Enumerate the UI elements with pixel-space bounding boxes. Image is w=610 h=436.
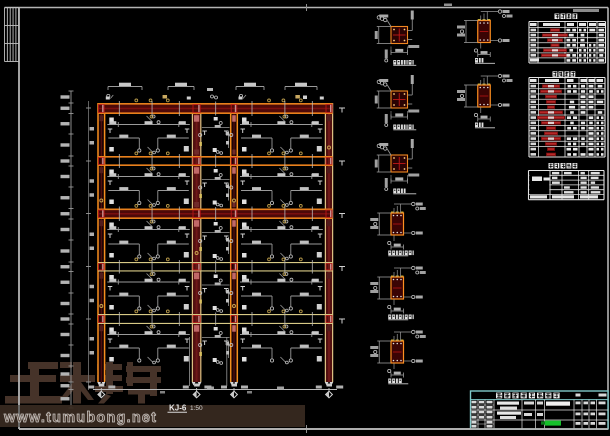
svg-text:1:50: 1:50 (190, 405, 203, 412)
svg-text:KJ-6: KJ-6 (169, 404, 187, 413)
svg-text:www.tumubong.net: www.tumubong.net (3, 410, 157, 426)
